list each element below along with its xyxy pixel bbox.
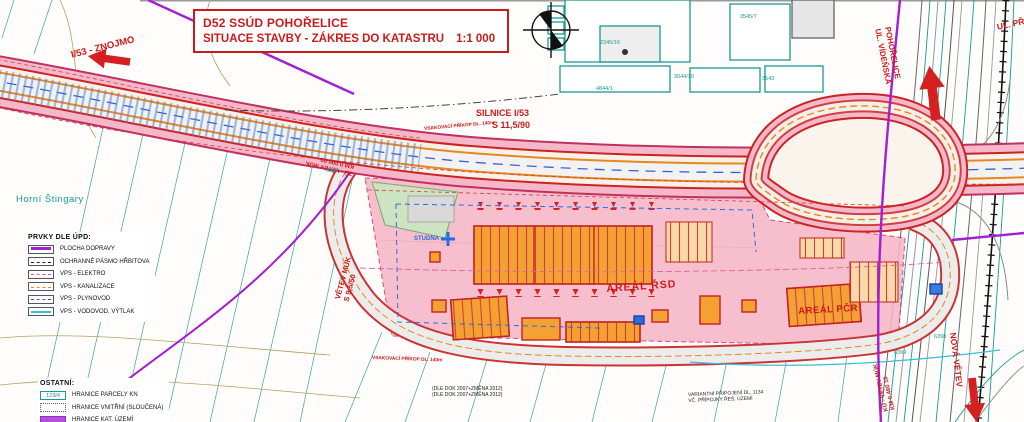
label-silnice-category: S 11,5/90	[492, 120, 530, 131]
legend-upd-title: PRVKY DLE ÚPD:	[28, 234, 149, 241]
legend-item-vps-plynovod: VPS - PLYNOVOD	[28, 295, 149, 304]
drawing-title: D52 SSÚD POHOŘELICE	[203, 16, 499, 30]
parcel-number: 4844/1	[596, 86, 613, 93]
building-sw	[451, 296, 510, 340]
swatch-vps-elektro	[28, 270, 54, 279]
title-block: D52 SSÚD POHOŘELICE SITUACE STAVBY - ZÁK…	[193, 9, 509, 53]
parcel-number: 3543	[762, 76, 774, 83]
ramp-loop	[756, 106, 955, 220]
drawing-scale: 1:1 000	[456, 33, 495, 45]
legend-item-pasmo-hrbitova: OCHRANNÉ PÁSMO HŘBITOVA	[28, 257, 149, 266]
label-studna: STUDNA	[414, 236, 439, 243]
blue-object-east	[930, 284, 942, 294]
parcel-number: 6384	[326, 168, 338, 175]
label-horni-stingary: Horní Štingary	[16, 194, 84, 205]
parcel-number: 6398	[934, 334, 946, 341]
blue-object	[634, 316, 644, 324]
parcel-number: 2345/16	[600, 40, 620, 47]
legend-item-hranice-vnitrni: HRANICE VNITŘNÍ (SLOUČENÁ)	[40, 403, 163, 412]
arrow-nova-vetev	[962, 377, 987, 422]
swatch-vps-vodovod	[28, 307, 54, 316]
swatch-plocha-dopravy	[28, 245, 54, 254]
swatch-hranice-vnitrni	[40, 403, 66, 412]
swatch-vps-plynovod	[28, 295, 54, 304]
legend-item-vps-vodovod: VPS - VODOVOD, VÝTLAK	[28, 307, 149, 316]
legend-item-vps-elektro: VPS - ELEKTRO	[28, 270, 149, 279]
swatch-pasmo-hrbitova	[28, 257, 54, 266]
legend-ostatni: OSTATNÍ: 123/4 HRANICE PARCELY KN HRANIC…	[38, 378, 169, 422]
drawing-sheet: D52 SSÚD POHOŘELICE SITUACE STAVBY - ZÁK…	[0, 0, 1024, 422]
parcel-number: 6399	[894, 350, 906, 357]
legend-item-vps-kanalizace: VPS - KANALIZACE	[28, 282, 149, 291]
parcel-number: 3545/7	[740, 14, 757, 21]
drawing-subtitle: SITUACE STAVBY - ZÁKRES DO KATASTRU	[203, 33, 444, 45]
swatch-hranice-kat-uzemi	[40, 416, 66, 422]
swatch-vps-kanalizace	[28, 282, 54, 291]
label-silnice-i53: SILNICE I/53	[476, 108, 529, 119]
legend-ostatni-title: OSTATNÍ:	[40, 380, 163, 387]
legend-upd: PRVKY DLE ÚPD: PLOCHA DOPRAVY OCHRANNÉ P…	[26, 232, 155, 322]
swatch-hranice-parcely: 123/4	[40, 391, 66, 400]
note-dok: (DLE DOK 2007+ZMĚNA 2012) (DLE DOK 2007+…	[432, 386, 502, 398]
legend-item-hranice-kat-uzemi: HRANICE KAT. ÚZEMÍ	[40, 416, 163, 422]
site-plan-canvas	[0, 0, 1024, 422]
parcel-number: 3044/10	[674, 74, 694, 81]
legend-item-hranice-parcely: 123/4 HRANICE PARCELY KN	[40, 391, 163, 400]
main-hall	[474, 226, 652, 284]
legend-item-plocha-dopravy: PLOCHA DOPRAVY	[28, 245, 149, 254]
